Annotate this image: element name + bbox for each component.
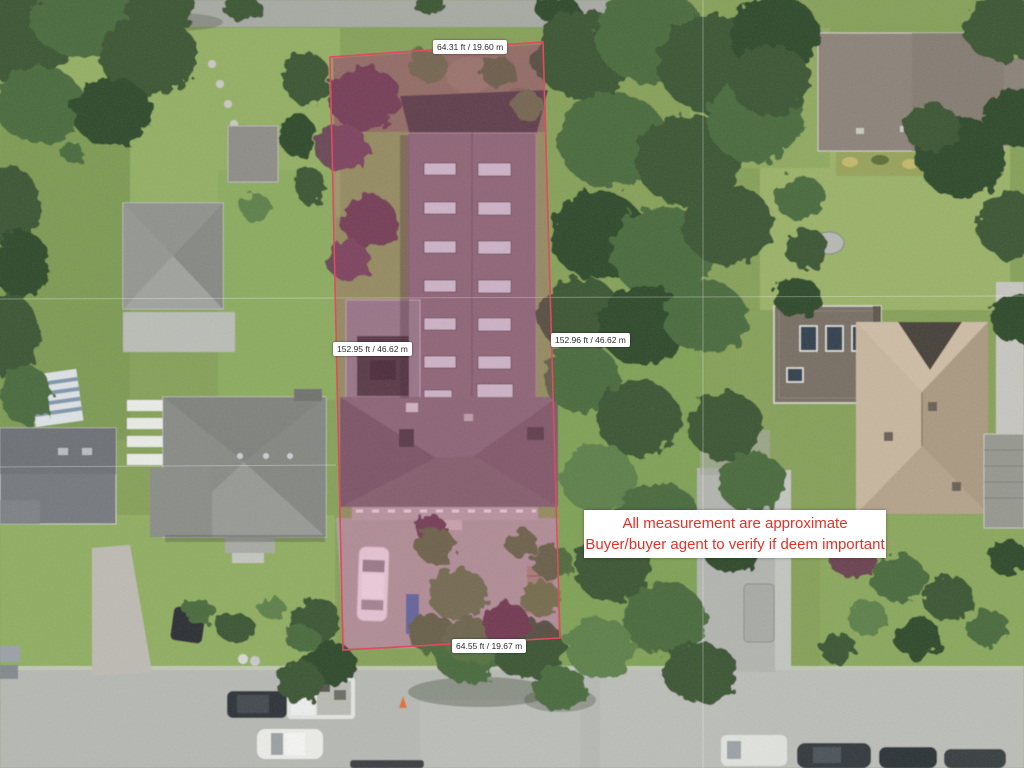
measurement-label-bottom: 64.55 ft / 19.67 m bbox=[452, 639, 526, 653]
aerial-photo-canvas: 64.31 ft / 19.60 m 152.95 ft / 46.62 m 1… bbox=[0, 0, 1024, 768]
disclaimer-line-1: All measurement are approximate bbox=[584, 513, 886, 534]
disclaimer-line-2: Buyer/buyer agent to verify if deem impo… bbox=[584, 534, 886, 555]
disclaimer-box: All measurement are approximate Buyer/bu… bbox=[584, 510, 886, 558]
measurement-label-top: 64.31 ft / 19.60 m bbox=[433, 40, 507, 54]
measurement-label-right: 152.96 ft / 46.62 m bbox=[551, 333, 630, 347]
measurement-label-left: 152.95 ft / 46.62 m bbox=[333, 342, 412, 356]
